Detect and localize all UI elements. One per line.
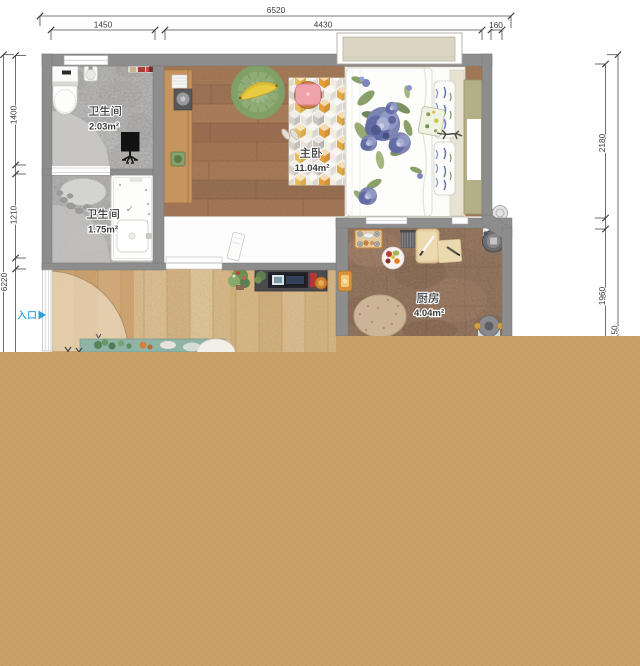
svg-text:4.04m²: 4.04m² [414,308,444,319]
svg-text:2.03m²: 2.03m² [89,122,119,133]
svg-text:1210: 1210 [9,205,19,224]
svg-text:50: 50 [609,325,619,335]
svg-text:6220: 6220 [0,272,9,291]
svg-text:4430: 4430 [314,20,333,30]
svg-text:6520: 6520 [267,5,286,15]
svg-text:1.75m²: 1.75m² [88,225,118,236]
svg-text:160: 160 [489,20,503,30]
svg-text:1400: 1400 [9,105,19,124]
svg-text:2180: 2180 [597,133,607,152]
svg-text:1960: 1960 [597,286,607,305]
svg-text:11.04m²: 11.04m² [295,163,330,174]
svg-text:1450: 1450 [94,20,113,30]
